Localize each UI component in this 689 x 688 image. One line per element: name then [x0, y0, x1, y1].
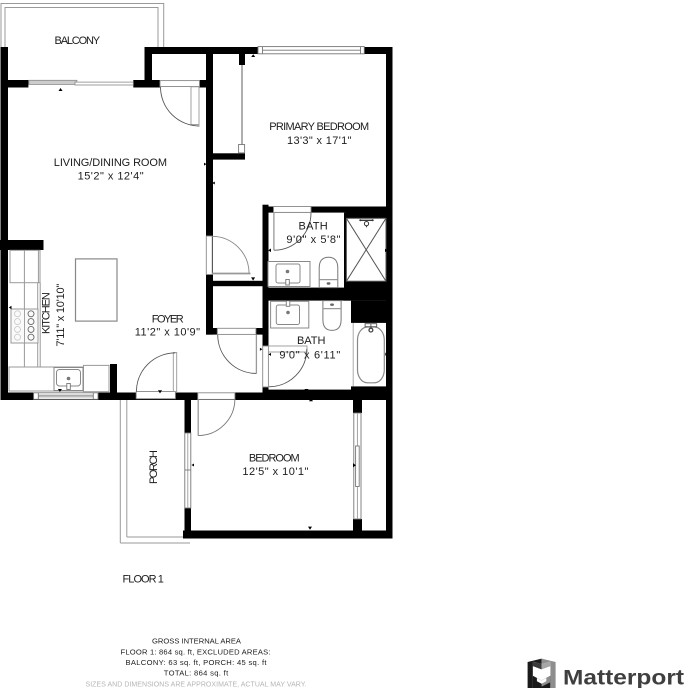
svg-text:13'3" x 17'1": 13'3" x 17'1" — [287, 135, 352, 147]
svg-text:FLOOR 1: 864 sq. ft, EXCLUDED: FLOOR 1: 864 sq. ft, EXCLUDED AREAS: — [121, 648, 271, 657]
svg-text:FOYER: FOYER — [152, 314, 184, 326]
svg-text:9'0" x 5'8": 9'0" x 5'8" — [286, 234, 340, 246]
svg-text:LIVING/DINING ROOM: LIVING/DINING ROOM — [54, 157, 167, 169]
svg-text:9'0" x 6'11": 9'0" x 6'11" — [279, 350, 340, 362]
svg-text:TOTAL: 864 sq. ft: TOTAL: 864 sq. ft — [164, 668, 229, 677]
svg-text:15'2" x 12'4": 15'2" x 12'4" — [78, 171, 144, 183]
svg-text:PORCH: PORCH — [148, 450, 160, 484]
svg-text:KITCHEN: KITCHEN — [41, 292, 53, 334]
svg-text:BATH: BATH — [299, 221, 328, 233]
svg-text:7'11" x 10'10": 7'11" x 10'10" — [55, 284, 67, 347]
svg-text:BEDROOM: BEDROOM — [249, 453, 300, 465]
svg-text:BALCONY: BALCONY — [55, 35, 101, 47]
svg-text:GROSS INTERNAL AREA: GROSS INTERNAL AREA — [152, 637, 242, 646]
svg-text:BATH: BATH — [297, 335, 326, 347]
svg-text:SIZES AND DIMENSIONS ARE APPRO: SIZES AND DIMENSIONS ARE APPROXIMATE, AC… — [86, 681, 307, 688]
svg-text:11'2" x 10'9": 11'2" x 10'9" — [135, 327, 200, 339]
svg-text:BALCONY: 63 sq. ft, PORCH: 45: BALCONY: 63 sq. ft, PORCH: 45 sq. ft — [126, 658, 268, 667]
svg-text:12'5" x 10'1": 12'5" x 10'1" — [242, 466, 308, 478]
svg-text:FLOOR 1: FLOOR 1 — [123, 574, 164, 586]
svg-text:PRIMARY BEDROOM: PRIMARY BEDROOM — [269, 121, 369, 133]
svg-text:Matterport: Matterport — [563, 667, 684, 688]
